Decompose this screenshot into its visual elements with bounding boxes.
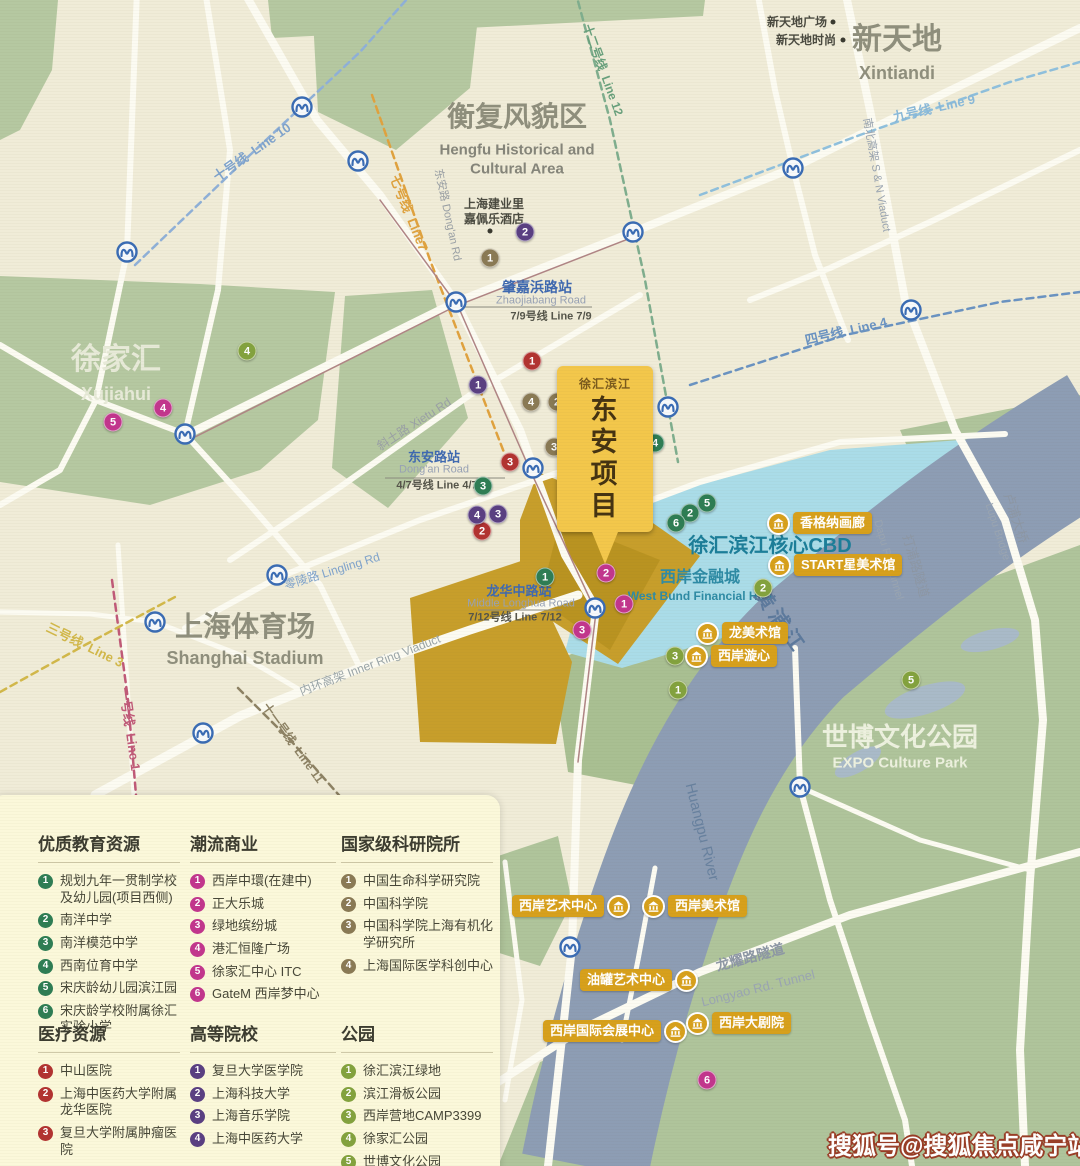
legend-item-list: 1徐汇滨江绿地2滨江滑板公园3西岸营地CAMP33994徐家汇公园5世博文化公园 <box>341 1063 493 1166</box>
legend-item-number: 3 <box>38 1126 53 1141</box>
legend-group-commercial: 潮流商业1西岸中環(在建中)2正大乐城3绿地缤纷城4港汇恒隆广场5徐家汇中心 I… <box>190 830 336 1009</box>
legend-item-number: 3 <box>38 936 53 951</box>
legend-item-label: 复旦大学医学院 <box>212 1063 303 1080</box>
landmark-badge-label: 西岸美术馆 <box>668 895 747 917</box>
legend-item-number: 3 <box>341 1109 356 1124</box>
legend-item: 4西南位育中学 <box>38 958 180 975</box>
legend-item: 5宋庆龄幼儿园滨江园 <box>38 980 180 997</box>
legend-item-label: 上海中医药大学 <box>212 1131 303 1148</box>
legend-item-number: 3 <box>190 1109 205 1124</box>
landmark-badge: 西岸美术馆 <box>642 894 747 918</box>
legend-item-number: 4 <box>190 942 205 957</box>
project-callout-subtitle: 徐汇滨江 <box>561 375 649 392</box>
landmark-badge: 西岸大剧院 <box>686 1011 791 1035</box>
legend-panel: 优质教育资源1规划九年一贯制学校及幼儿园(项目西侧)2南洋中学3南洋模范中学4西… <box>0 795 500 1166</box>
legend-item: 4徐家汇公园 <box>341 1131 493 1148</box>
museum-icon <box>607 895 630 918</box>
legend-item-label: 复旦大学附属肿瘤医院 <box>60 1125 180 1158</box>
legend-item-label: 世博文化公园 <box>363 1154 441 1166</box>
map-stage: 新天地Xintiandi衡复风貌区Hengfu Historical andCu… <box>0 0 1080 1166</box>
legend-item: 4港汇恒隆广场 <box>190 941 336 958</box>
legend-item-number: 4 <box>341 1132 356 1147</box>
museum-icon <box>642 895 665 918</box>
legend-item: 4上海国际医学科创中心 <box>341 958 493 975</box>
landmark-badge: START星美术馆 <box>768 553 902 577</box>
legend-item: 2滨江滑板公园 <box>341 1086 493 1103</box>
legend-item-number: 3 <box>190 919 205 934</box>
legend-item: 3复旦大学附属肿瘤医院 <box>38 1125 180 1158</box>
legend-item: 3南洋模范中学 <box>38 935 180 952</box>
legend-item: 3西岸营地CAMP3399 <box>341 1108 493 1125</box>
landmark-badge-label: 西岸大剧院 <box>712 1012 791 1034</box>
legend-item-label: 绿地缤纷城 <box>212 918 277 935</box>
legend-item-label: 南洋中学 <box>60 912 112 929</box>
legend-group-park: 公园1徐汇滨江绿地2滨江滑板公园3西岸营地CAMP33994徐家汇公园5世博文化… <box>341 1020 493 1166</box>
legend-item: 1徐汇滨江绿地 <box>341 1063 493 1080</box>
legend-item: 3绿地缤纷城 <box>190 918 336 935</box>
legend-item: 3上海音乐学院 <box>190 1108 336 1125</box>
legend-item-list: 1复旦大学医学院2上海科技大学3上海音乐学院4上海中医药大学 <box>190 1063 336 1148</box>
museum-icon <box>675 969 698 992</box>
legend-item-label: 中国科学院上海有机化学研究所 <box>363 918 493 951</box>
watermark: 搜狐号@搜狐焦点咸宁站 <box>828 1126 1080 1161</box>
museum-icon <box>664 1020 687 1043</box>
legend-item-number: 5 <box>190 965 205 980</box>
legend-item-number: 6 <box>190 987 205 1002</box>
legend-item-label: 中国生命科学研究院 <box>363 873 480 890</box>
legend-item: 2中国科学院 <box>341 896 493 913</box>
legend-item-number: 1 <box>341 874 356 889</box>
legend-group-university: 高等院校1复旦大学医学院2上海科技大学3上海音乐学院4上海中医药大学 <box>190 1020 336 1154</box>
legend-group-title: 国家级科研院所 <box>341 830 493 863</box>
legend-item-number: 4 <box>38 959 53 974</box>
legend-group-medical: 医疗资源1中山医院2上海中医药大学附属龙华医院3复旦大学附属肿瘤医院 <box>38 1020 180 1164</box>
legend-item: 2上海科技大学 <box>190 1086 336 1103</box>
project-callout-title: 东安项目 <box>578 395 632 522</box>
legend-item-number: 1 <box>341 1064 356 1079</box>
museum-icon <box>768 554 791 577</box>
legend-item-label: 中山医院 <box>60 1063 112 1080</box>
legend-item: 2南洋中学 <box>38 912 180 929</box>
legend-item-label: 南洋模范中学 <box>60 935 138 952</box>
legend-item-number: 6 <box>38 1004 53 1019</box>
museum-icon <box>767 512 790 535</box>
legend-item-label: 上海中医药大学附属龙华医院 <box>60 1086 180 1119</box>
legend-item: 2正大乐城 <box>190 896 336 913</box>
legend-group-title: 医疗资源 <box>38 1020 180 1053</box>
legend-item-label: 规划九年一贯制学校及幼儿园(项目西侧) <box>60 873 180 906</box>
legend-item-number: 5 <box>38 981 53 996</box>
landmark-badge-label: 油罐艺术中心 <box>580 969 672 991</box>
legend-item-number: 1 <box>190 1064 205 1079</box>
legend-group-title: 优质教育资源 <box>38 830 180 863</box>
legend-item: 6GateM 西岸梦中心 <box>190 986 336 1003</box>
legend-item-label: 上海科技大学 <box>212 1086 290 1103</box>
legend-group-research: 国家级科研院所1中国生命科学研究院2中国科学院3中国科学院上海有机化学研究所4上… <box>341 830 493 980</box>
landmark-badge: 油罐艺术中心 <box>580 968 698 992</box>
legend-item-label: 滨江滑板公园 <box>363 1086 441 1103</box>
museum-icon <box>696 622 719 645</box>
legend-item-number: 2 <box>341 1087 356 1102</box>
legend-item: 1中山医院 <box>38 1063 180 1080</box>
legend-item-label: GateM 西岸梦中心 <box>212 986 320 1003</box>
landmark-badge-label: START星美术馆 <box>794 554 902 576</box>
legend-item: 1中国生命科学研究院 <box>341 873 493 890</box>
legend-item: 5世博文化公园 <box>341 1154 493 1166</box>
landmark-badge-label: 西岸艺术中心 <box>512 895 604 917</box>
legend-item: 2上海中医药大学附属龙华医院 <box>38 1086 180 1119</box>
legend-item-label: 西岸中環(在建中) <box>212 873 312 890</box>
legend-item-number: 1 <box>190 874 205 889</box>
legend-item-label: 徐家汇公园 <box>363 1131 428 1148</box>
legend-item-label: 正大乐城 <box>212 896 264 913</box>
legend-item-list: 1中国生命科学研究院2中国科学院3中国科学院上海有机化学研究所4上海国际医学科创… <box>341 873 493 974</box>
landmark-badge: 香格纳画廊 <box>767 511 872 535</box>
legend-item-label: 港汇恒隆广场 <box>212 941 290 958</box>
landmark-badge-label: 龙美术馆 <box>722 622 788 644</box>
legend-item-label: 上海音乐学院 <box>212 1108 290 1125</box>
legend-item-number: 2 <box>190 1087 205 1102</box>
legend-item-label: 中国科学院 <box>363 896 428 913</box>
museum-icon <box>686 1012 709 1035</box>
legend-item-number: 1 <box>38 1064 53 1079</box>
legend-group-title: 潮流商业 <box>190 830 336 863</box>
landmark-badge-label: 西岸国际会展中心 <box>543 1020 661 1042</box>
legend-group-title: 公园 <box>341 1020 493 1053</box>
legend-item-number: 4 <box>341 959 356 974</box>
landmark-badge: 龙美术馆 <box>696 621 788 645</box>
legend-item-label: 西岸营地CAMP3399 <box>363 1108 481 1125</box>
legend-item-number: 3 <box>341 919 356 934</box>
landmark-badge: 西岸漩心 <box>685 644 777 668</box>
legend-item: 5徐家汇中心 ITC <box>190 964 336 981</box>
legend-item: 3中国科学院上海有机化学研究所 <box>341 918 493 951</box>
legend-item-list: 1西岸中環(在建中)2正大乐城3绿地缤纷城4港汇恒隆广场5徐家汇中心 ITC6G… <box>190 873 336 1003</box>
legend-item-number: 2 <box>190 897 205 912</box>
legend-item-label: 徐家汇中心 ITC <box>212 964 302 981</box>
legend-item-number: 1 <box>38 874 53 889</box>
landmark-badge-label: 西岸漩心 <box>711 645 777 667</box>
legend-item-label: 宋庆龄幼儿园滨江园 <box>60 980 177 997</box>
legend-group-title: 高等院校 <box>190 1020 336 1053</box>
legend-item-number: 2 <box>38 1087 53 1102</box>
legend-item-label: 徐汇滨江绿地 <box>363 1063 441 1080</box>
legend-item: 1复旦大学医学院 <box>190 1063 336 1080</box>
legend-item-number: 2 <box>341 897 356 912</box>
landmark-badge-label: 香格纳画廊 <box>793 512 872 534</box>
legend-group-education: 优质教育资源1规划九年一贯制学校及幼儿园(项目西侧)2南洋中学3南洋模范中学4西… <box>38 830 180 1042</box>
legend-item: 1西岸中環(在建中) <box>190 873 336 890</box>
legend-item-number: 4 <box>190 1132 205 1147</box>
legend-item-number: 2 <box>38 913 53 928</box>
landmark-badge: 西岸艺术中心 <box>512 894 630 918</box>
legend-item-list: 1中山医院2上海中医药大学附属龙华医院3复旦大学附属肿瘤医院 <box>38 1063 180 1158</box>
landmark-badge: 西岸国际会展中心 <box>543 1019 687 1043</box>
legend-item: 1规划九年一贯制学校及幼儿园(项目西侧) <box>38 873 180 906</box>
project-callout: 徐汇滨江 东安项目 <box>557 366 653 532</box>
legend-item-number: 5 <box>341 1155 356 1166</box>
museum-icon <box>685 645 708 668</box>
legend-item: 4上海中医药大学 <box>190 1131 336 1148</box>
legend-item-list: 1规划九年一贯制学校及幼儿园(项目西侧)2南洋中学3南洋模范中学4西南位育中学5… <box>38 873 180 1036</box>
legend-item-label: 上海国际医学科创中心 <box>363 958 493 975</box>
legend-item-label: 西南位育中学 <box>60 958 138 975</box>
